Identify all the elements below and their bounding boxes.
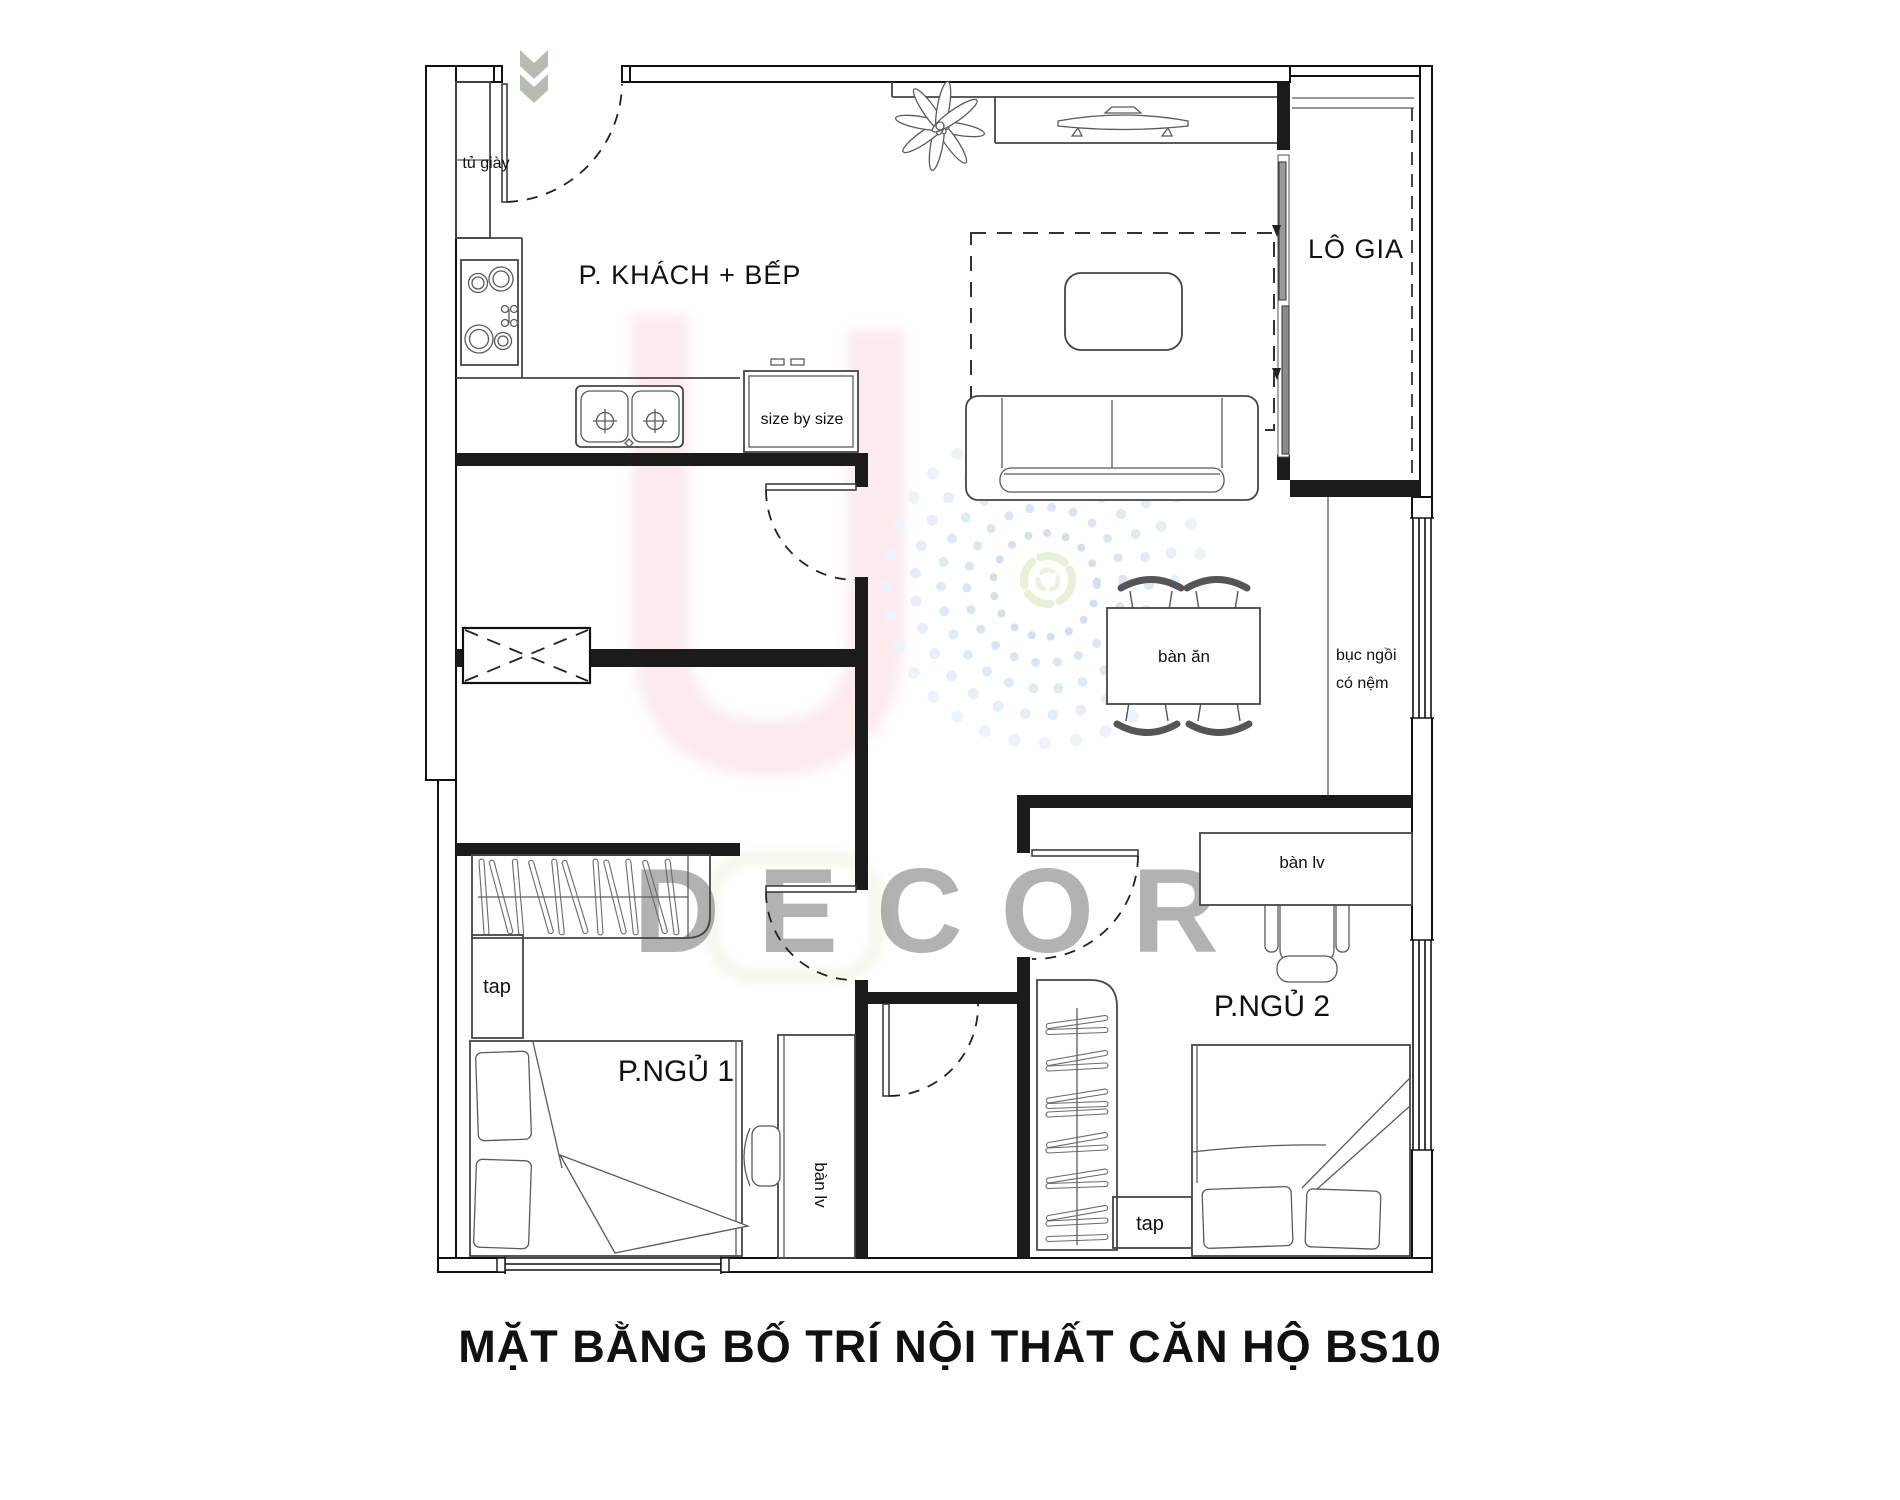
dining-chair <box>1189 702 1249 733</box>
pillow <box>1202 1186 1293 1248</box>
wardrobe-bedroom2 <box>1037 980 1117 1250</box>
plant <box>895 81 986 172</box>
fridge <box>744 359 858 452</box>
label-shoe-cabinet: tủ giày <box>462 155 509 172</box>
window-dining <box>1410 518 1434 718</box>
label-cabinet-bedroom2: tap <box>1136 1213 1164 1235</box>
pillow <box>473 1159 531 1249</box>
entry-opening <box>494 62 630 86</box>
window-bedroom1 <box>497 1256 729 1274</box>
bed2 <box>1192 1045 1410 1256</box>
label-bench-1: bục ngồi <box>1336 647 1397 664</box>
coffee-table <box>1065 273 1182 350</box>
label-bedroom1: P.NGỦ 1 <box>618 1054 734 1088</box>
cooktop <box>461 260 518 365</box>
floor-plan-drawing: DECOR <box>0 0 1900 1500</box>
wall-top-loggia <box>1290 66 1420 76</box>
window-bedroom2 <box>1410 940 1434 1150</box>
vent-shaft <box>463 628 590 683</box>
tv <box>1058 107 1188 136</box>
label-dining-table: bàn ăn <box>1158 647 1210 666</box>
doors <box>766 484 1138 1096</box>
wall-right-loggia <box>1420 66 1432 497</box>
desk-bedroom1-group <box>744 1035 855 1258</box>
pillow <box>1305 1189 1381 1250</box>
label-living-kitchen: P. KHÁCH + BẾP <box>579 259 802 290</box>
wc2-door <box>883 1004 978 1096</box>
sofa <box>966 396 1258 500</box>
label-cabinet-bedroom1: tap <box>483 976 511 998</box>
bathroom-door <box>766 484 856 580</box>
label-bedroom2: P.NGỦ 2 <box>1214 989 1330 1023</box>
wall-left-upper <box>426 66 456 780</box>
desk-chair-bedroom1 <box>744 1126 780 1186</box>
pillow <box>475 1051 531 1141</box>
label-desk-bedroom1: bàn lv <box>811 1162 830 1208</box>
floor-plan-sheet: DECOR <box>0 0 1900 1500</box>
label-bench-2: có nệm <box>1336 675 1388 692</box>
dining-chair <box>1187 580 1247 611</box>
kitchen-sink <box>576 386 683 447</box>
label-desk-bedroom2: bàn lv <box>1279 853 1325 872</box>
watermark-text: DECOR <box>633 844 1256 978</box>
label-fridge: size by size <box>761 411 844 428</box>
wall-left-lower <box>438 780 456 1258</box>
label-loggia: LÔ GIA <box>1308 233 1404 264</box>
dining-chair <box>1117 702 1177 733</box>
page-title: MẶT BẰNG BỐ TRÍ NỘI THẤT CĂN HỘ BS10 <box>458 1321 1442 1372</box>
